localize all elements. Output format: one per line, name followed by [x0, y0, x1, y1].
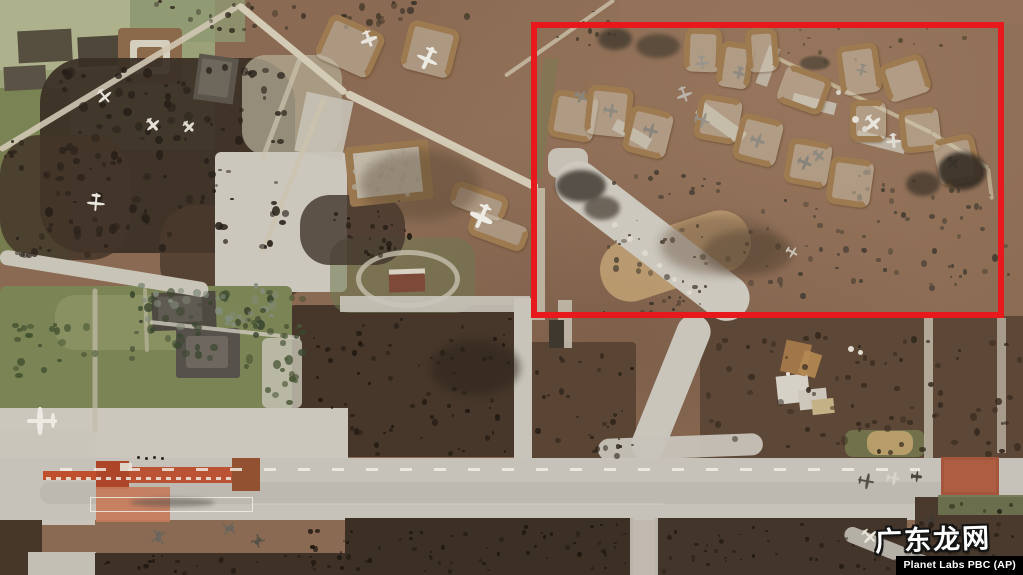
terrain-speckle — [294, 334, 300, 339]
terrain-speckle — [91, 134, 100, 142]
terrain-speckle — [624, 562, 626, 565]
terrain-speckle — [404, 229, 406, 231]
terrain-speckle — [121, 67, 127, 73]
terrain-speckle — [183, 87, 191, 94]
terrain-speckle — [508, 318, 511, 320]
terrain-speckle — [938, 402, 944, 408]
terrain-speckle — [565, 545, 569, 550]
terrain-speckle — [863, 568, 865, 570]
terrain-speckle — [394, 323, 399, 329]
terrain-speckle — [692, 559, 695, 561]
terrain-speckle — [375, 452, 380, 456]
terrain-speckle — [820, 433, 826, 437]
terrain-speckle — [429, 555, 432, 559]
terrain-speckle — [667, 535, 672, 540]
terrain-speckle — [559, 388, 564, 394]
terrain-speckle — [399, 538, 402, 541]
terrain-speckle — [350, 414, 354, 418]
terrain-speckle — [269, 314, 274, 317]
terrain-speckle — [238, 117, 243, 124]
terrain-speckle — [178, 288, 184, 295]
white-dot — [145, 457, 148, 460]
terrain-speckle — [312, 565, 314, 567]
terrain-speckle — [311, 560, 316, 564]
terrain-speckle — [292, 5, 297, 9]
terrain-speckle — [229, 311, 236, 320]
terrain-speckle — [313, 546, 317, 551]
terrain-patch — [60, 468, 920, 471]
terrain-speckle — [341, 346, 346, 351]
terrain-speckle — [17, 328, 21, 332]
terrain-speckle — [4, 155, 7, 158]
terrain-speckle — [352, 350, 356, 356]
terrain-speckle — [884, 362, 888, 365]
terrain-speckle — [102, 162, 106, 166]
terrain-speckle — [722, 338, 728, 342]
terrain-speckle — [217, 27, 222, 31]
terrain-speckle — [560, 358, 565, 363]
terrain-speckle — [92, 350, 97, 356]
terrain-speckle — [196, 565, 198, 567]
terrain-speckle — [141, 213, 149, 222]
terrain-speckle — [856, 564, 860, 568]
white-dot — [848, 346, 854, 352]
terrain-speckle — [618, 372, 622, 376]
terrain-speckle — [378, 215, 381, 218]
terrain-speckle — [27, 324, 34, 329]
terrain-speckle — [409, 531, 413, 534]
terrain-speckle — [388, 376, 393, 381]
terrain-speckle — [79, 102, 88, 111]
terrain-speckle — [280, 340, 285, 345]
terrain-speckle — [852, 544, 854, 547]
terrain-speckle — [41, 367, 48, 373]
terrain-speckle — [284, 324, 289, 329]
terrain-speckle — [732, 436, 738, 442]
terrain-speckle — [96, 232, 102, 237]
terrain-speckle — [337, 555, 342, 559]
terrain-speckle — [15, 373, 22, 378]
terrain-patch — [340, 296, 530, 312]
terrain-speckle — [65, 191, 71, 195]
terrain-speckle — [222, 64, 228, 71]
terrain-speckle — [970, 413, 977, 421]
terrain-speckle — [449, 339, 454, 343]
terrain-speckle — [215, 184, 218, 187]
plane-tail — [910, 473, 912, 479]
terrain-speckle — [800, 523, 804, 526]
terrain-speckle — [47, 249, 51, 252]
terrain-patch — [3, 65, 46, 91]
helicopter-icon — [248, 531, 268, 551]
terrain-speckle — [726, 366, 732, 372]
terrain-speckle — [616, 523, 618, 526]
terrain-speckle — [837, 540, 840, 542]
terrain-speckle — [285, 26, 289, 30]
terrain-speckle — [407, 233, 413, 240]
terrain-speckle — [230, 198, 234, 201]
terrain-speckle — [448, 569, 452, 574]
terrain-speckle — [246, 354, 254, 364]
terrain-patch — [262, 338, 302, 408]
terrain-speckle — [297, 324, 302, 328]
terrain-speckle — [109, 224, 117, 234]
plane-wings — [37, 407, 43, 436]
terrain-speckle — [110, 161, 115, 165]
terrain-speckle — [201, 195, 205, 200]
terrain-speckle — [391, 425, 394, 429]
terrain-speckle — [182, 296, 191, 305]
terrain-speckle — [1009, 503, 1013, 508]
terrain-speckle — [542, 395, 546, 399]
terrain-speckle — [64, 324, 71, 332]
terrain-speckle — [96, 124, 103, 129]
terrain-speckle — [624, 533, 627, 535]
road — [93, 288, 98, 432]
terrain-speckle — [181, 81, 186, 86]
terrain-speckle — [935, 363, 940, 368]
terrain-speckle — [115, 88, 123, 97]
terrain-speckle — [619, 445, 621, 448]
terrain-speckle — [420, 531, 423, 535]
terrain-speckle — [410, 404, 414, 407]
terrain-speckle — [263, 96, 266, 99]
terrain-speckle — [595, 446, 600, 452]
terrain-speckle — [153, 291, 159, 297]
terrain-speckle — [928, 382, 934, 387]
terrain-speckle — [195, 351, 201, 358]
terrain-speckle — [926, 340, 929, 343]
terrain-speckle — [277, 72, 285, 79]
terrain-speckle — [43, 171, 51, 179]
terrain-speckle — [997, 509, 1002, 514]
terrain-speckle — [204, 116, 211, 123]
terrain-speckle — [177, 333, 182, 338]
terrain-speckle — [130, 346, 135, 351]
terrain-speckle — [262, 68, 268, 73]
terrain-speckle — [370, 254, 374, 258]
terrain-speckle — [313, 568, 316, 571]
terrain-speckle — [143, 564, 147, 569]
terrain-speckle — [327, 565, 331, 568]
aircraft-icon — [86, 192, 106, 212]
terrain-speckle — [155, 136, 163, 144]
terrain-speckle — [162, 315, 168, 321]
terrain-speckle — [299, 296, 306, 303]
terrain-speckle — [430, 551, 432, 553]
terrain-speckle — [448, 451, 452, 456]
terrain-patch — [17, 29, 73, 64]
terrain-speckle — [577, 552, 582, 558]
terrain-speckle — [64, 70, 72, 79]
terrain-speckle — [378, 253, 383, 258]
terrain-speckle — [137, 566, 141, 570]
terrain-speckle — [600, 524, 602, 526]
terrain-speckle — [503, 334, 506, 336]
terrain-speckle — [45, 207, 53, 217]
terrain-speckle — [19, 140, 24, 145]
terrain-speckle — [73, 226, 81, 235]
terrain-patch — [253, 503, 663, 505]
terrain-patch — [630, 514, 658, 575]
terrain-speckle — [356, 331, 361, 335]
terrain-speckle — [273, 360, 281, 369]
terrain-speckle — [167, 288, 176, 298]
terrain-speckle — [889, 416, 893, 421]
terrain-speckle — [366, 19, 373, 25]
terrain-speckle — [164, 100, 171, 108]
terrain-speckle — [182, 350, 189, 357]
white-dot — [161, 457, 164, 460]
aircraft-icon — [885, 470, 901, 486]
terrain-speckle — [115, 73, 121, 79]
terrain-speckle — [144, 303, 152, 312]
terrain-speckle — [900, 416, 906, 422]
terrain-speckle — [315, 529, 320, 533]
terrain-patch — [28, 552, 96, 575]
terrain-speckle — [270, 211, 275, 217]
aircraft-icon — [857, 472, 876, 491]
terrain-speckle — [787, 409, 794, 415]
terrain-speckle — [893, 352, 897, 355]
terrain-speckle — [432, 419, 438, 426]
white-dot — [786, 372, 790, 376]
terrain-speckle — [69, 219, 73, 223]
terrain-speckle — [326, 347, 330, 351]
terrain-speckle — [225, 321, 230, 326]
terrain-speckle — [81, 74, 86, 78]
terrain-speckle — [426, 392, 431, 396]
terrain-speckle — [995, 398, 1002, 405]
terrain-speckle — [1011, 535, 1014, 538]
terrain-patch — [389, 273, 426, 292]
terrain-speckle — [152, 559, 155, 562]
burn-mark — [430, 340, 520, 395]
terrain-speckle — [1017, 357, 1023, 362]
terrain-speckle — [237, 314, 242, 319]
terrain-speckle — [147, 325, 154, 334]
terrain-speckle — [219, 224, 228, 230]
terrain-speckle — [159, 244, 166, 251]
terrain-speckle — [485, 435, 490, 441]
terrain-speckle — [610, 419, 615, 425]
terrain-speckle — [184, 137, 187, 141]
terrain-speckle — [129, 356, 134, 361]
terrain-speckle — [251, 295, 259, 304]
terrain-speckle — [1007, 273, 1010, 276]
terrain-speckle — [911, 336, 916, 342]
terrain-speckle — [318, 398, 323, 402]
terrain-speckle — [607, 426, 610, 428]
terrain-speckle — [164, 84, 168, 88]
terrain-speckle — [613, 413, 617, 417]
terrain-speckle — [958, 349, 961, 352]
terrain-patch — [186, 336, 228, 368]
terrain-speckle — [73, 158, 79, 163]
burn-mark — [360, 150, 480, 220]
terrain-speckle — [298, 349, 306, 356]
terrain-speckle — [207, 355, 213, 362]
terrain-patch — [924, 318, 933, 458]
terrain-speckle — [870, 360, 875, 365]
terrain-speckle — [597, 368, 600, 372]
terrain-speckle — [845, 537, 848, 539]
terrain-speckle — [398, 17, 403, 22]
plane-tail — [51, 414, 55, 429]
terrain-speckle — [208, 301, 212, 306]
terrain-speckle — [272, 291, 279, 299]
terrain-speckle — [218, 169, 221, 171]
terrain-speckle — [899, 358, 903, 362]
terrain-speckle — [56, 191, 60, 195]
aircraft-icon — [27, 406, 57, 436]
terrain-speckle — [482, 562, 486, 565]
terrain-speckle — [281, 110, 287, 117]
terrain-speckle — [242, 28, 246, 31]
terrain-speckle — [248, 311, 253, 316]
terrain-speckle — [497, 552, 500, 556]
terrain-speckle — [197, 303, 202, 306]
terrain-patch — [944, 460, 996, 492]
terrain-speckle — [600, 353, 605, 359]
terrain-speckle — [357, 372, 360, 375]
terrain-speckle — [178, 205, 181, 209]
terrain-speckle — [371, 356, 376, 360]
terrain-speckle — [182, 571, 187, 575]
terrain-speckle — [535, 370, 539, 375]
terrain-speckle — [576, 531, 581, 537]
terrain-speckle — [994, 533, 999, 537]
terrain-speckle — [578, 361, 581, 363]
plane-wings — [915, 471, 918, 482]
terrain-speckle — [66, 143, 73, 152]
terrain-patch — [120, 463, 132, 471]
terrain-speckle — [495, 414, 500, 418]
terrain-speckle — [195, 332, 200, 336]
terrain-speckle — [919, 447, 925, 452]
terrain-speckle — [812, 392, 816, 397]
terrain-speckle — [59, 80, 62, 84]
terrain-speckle — [154, 300, 161, 307]
plane-tail — [92, 194, 101, 197]
terrain-speckle — [400, 8, 405, 14]
terrain-speckle — [256, 561, 258, 562]
terrain-speckle — [188, 17, 192, 21]
terrain-patch — [232, 458, 260, 491]
terrain-speckle — [407, 7, 414, 13]
terrain-speckle — [172, 340, 180, 348]
terrain-speckle — [894, 386, 899, 390]
aircraft-icon — [910, 470, 922, 482]
terrain-speckle — [231, 568, 236, 573]
terrain-speckle — [231, 322, 236, 327]
terrain-patch — [46, 477, 236, 480]
terrain-speckle — [11, 140, 14, 143]
terrain-speckle — [81, 352, 87, 357]
terrain-speckle — [359, 343, 364, 347]
terrain-speckle — [271, 201, 277, 205]
terrain-patch — [549, 320, 564, 348]
terrain-speckle — [221, 294, 226, 299]
terrain-speckle — [167, 232, 172, 238]
terrain-patch — [514, 298, 532, 460]
terrain-speckle — [39, 233, 45, 240]
terrain-speckle — [388, 344, 391, 347]
terrain-patch — [997, 318, 1006, 453]
terrain-speckle — [422, 399, 428, 405]
terrain-speckle — [555, 438, 560, 444]
terrain-speckle — [112, 126, 120, 133]
terrain-speckle — [353, 169, 357, 173]
terrain-speckle — [350, 530, 353, 533]
terrain-speckle — [331, 406, 333, 408]
burn-mark — [130, 498, 215, 507]
terrain-speckle — [58, 339, 66, 345]
white-dot — [153, 456, 156, 459]
terrain-speckle — [465, 409, 470, 413]
terrain-speckle — [356, 567, 359, 571]
terrain-speckle — [167, 117, 175, 124]
terrain-speckle — [215, 307, 222, 315]
terrain-speckle — [715, 421, 721, 427]
terrain-speckle — [243, 323, 248, 329]
terrain-speckle — [142, 298, 147, 303]
terrain-speckle — [15, 251, 20, 254]
terrain-speckle — [328, 358, 333, 362]
terrain-speckle — [140, 137, 144, 140]
terrain-speckle — [724, 557, 726, 559]
terrain-speckle — [267, 328, 274, 335]
terrain-speckle — [714, 549, 718, 553]
terrain-speckle — [598, 541, 601, 544]
highlight-rectangle — [531, 22, 1004, 318]
satellite-image: 广东龙网 Planet Labs PBC (AP) — [0, 0, 1023, 575]
terrain-speckle — [603, 445, 608, 451]
terrain-speckle — [490, 398, 494, 403]
terrain-speckle — [872, 420, 877, 425]
terrain-speckle — [145, 316, 151, 322]
terrain-speckle — [219, 557, 224, 561]
terrain-speckle — [334, 212, 338, 216]
terrain-speckle — [387, 246, 391, 250]
terrain-speckle — [746, 345, 750, 349]
terrain-speckle — [412, 547, 417, 551]
terrain-speckle — [706, 544, 708, 546]
terrain-speckle — [245, 71, 252, 76]
terrain-speckle — [252, 24, 257, 28]
terrain-speckle — [370, 224, 376, 229]
terrain-speckle — [123, 108, 132, 116]
terrain-speckle — [855, 361, 859, 364]
terrain-speckle — [479, 559, 482, 561]
terrain-speckle — [347, 217, 350, 220]
terrain-speckle — [210, 344, 218, 352]
terrain-speckle — [378, 546, 381, 550]
terrain-speckle — [830, 406, 834, 410]
terrain-speckle — [907, 420, 914, 425]
terrain-speckle — [383, 225, 388, 230]
terrain-speckle — [215, 296, 221, 301]
terrain-speckle — [1004, 343, 1009, 347]
terrain-speckle — [802, 364, 808, 370]
terrain-speckle — [232, 3, 236, 7]
terrain-speckle — [106, 177, 111, 181]
terrain-speckle — [391, 2, 397, 8]
terrain-speckle — [26, 253, 31, 258]
terrain-speckle — [899, 442, 903, 447]
terrain-speckle — [272, 10, 278, 18]
terrain-speckle — [550, 532, 553, 535]
